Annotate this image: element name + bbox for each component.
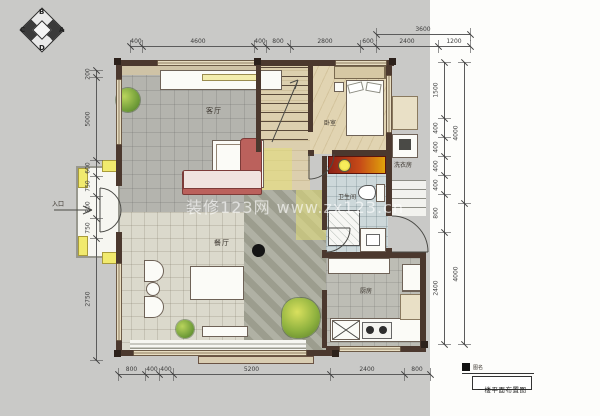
dimension-label: 750 [85,222,92,233]
dimension-line [96,70,97,360]
dimension-label: 5200 [244,366,259,373]
dimension-label: 2800 [317,38,332,45]
back-door-arc [392,216,428,252]
dimension-label: 200 [85,68,92,79]
dimension-label: 400 [146,366,157,373]
floor-plan-canvas: B C A D [0,0,600,416]
laundry-label: 洗衣房 [394,160,412,169]
dimension-label: 5000 [85,111,92,126]
dimension-label: 400 [433,160,440,171]
dimension-label: 3600 [415,26,430,33]
bedroom-door-arc [309,154,334,179]
dimension-label: 2400 [399,38,414,45]
porch-door-arc [100,188,121,210]
dimension-label: 800 [126,366,137,373]
bathroom-door-arc [326,228,350,252]
dining-room-label: 餐厅 [214,238,230,248]
dimension-label: 750 [85,180,92,191]
dimension-label: 1500 [433,82,440,97]
dimension-label: 2400 [433,280,440,295]
dimension-label: 400 [130,38,141,45]
dimension-label: 400 [433,179,440,190]
dimension-label: 400 [254,38,265,45]
dimension-line [130,46,470,47]
dimension-label: 400 [433,122,440,133]
kitchen-label: 厨房 [360,286,372,295]
dimension-label: 800 [85,201,92,212]
dimension-label: 800 [411,366,422,373]
dimension-label: 1200 [446,38,461,45]
dimension-line [118,374,430,375]
dimension-label: 4600 [190,38,205,45]
dimension-label: 4000 [453,125,460,140]
dimension-label: 600 [362,38,373,45]
sink-cross [333,321,359,339]
dimension-label: 400 [433,141,440,152]
living-room-label: 客厅 [206,106,222,116]
stair-direction-arrow [272,80,298,142]
dimension-label: 4000 [453,266,460,281]
porch-door-arc [100,210,121,232]
dimension-label: 2750 [85,291,92,306]
entry-label: 入口 [52,199,64,208]
dimension-label: 2400 [359,366,374,373]
dimension-label: 400 [160,366,171,373]
dimension-label: 800 [272,38,283,45]
bedroom-label: 卧室 [324,118,336,127]
watermark-text: 装修123网 www.zx123.cn [140,194,450,218]
dimension-label: 600 [85,162,92,173]
dimension-line [376,34,470,35]
